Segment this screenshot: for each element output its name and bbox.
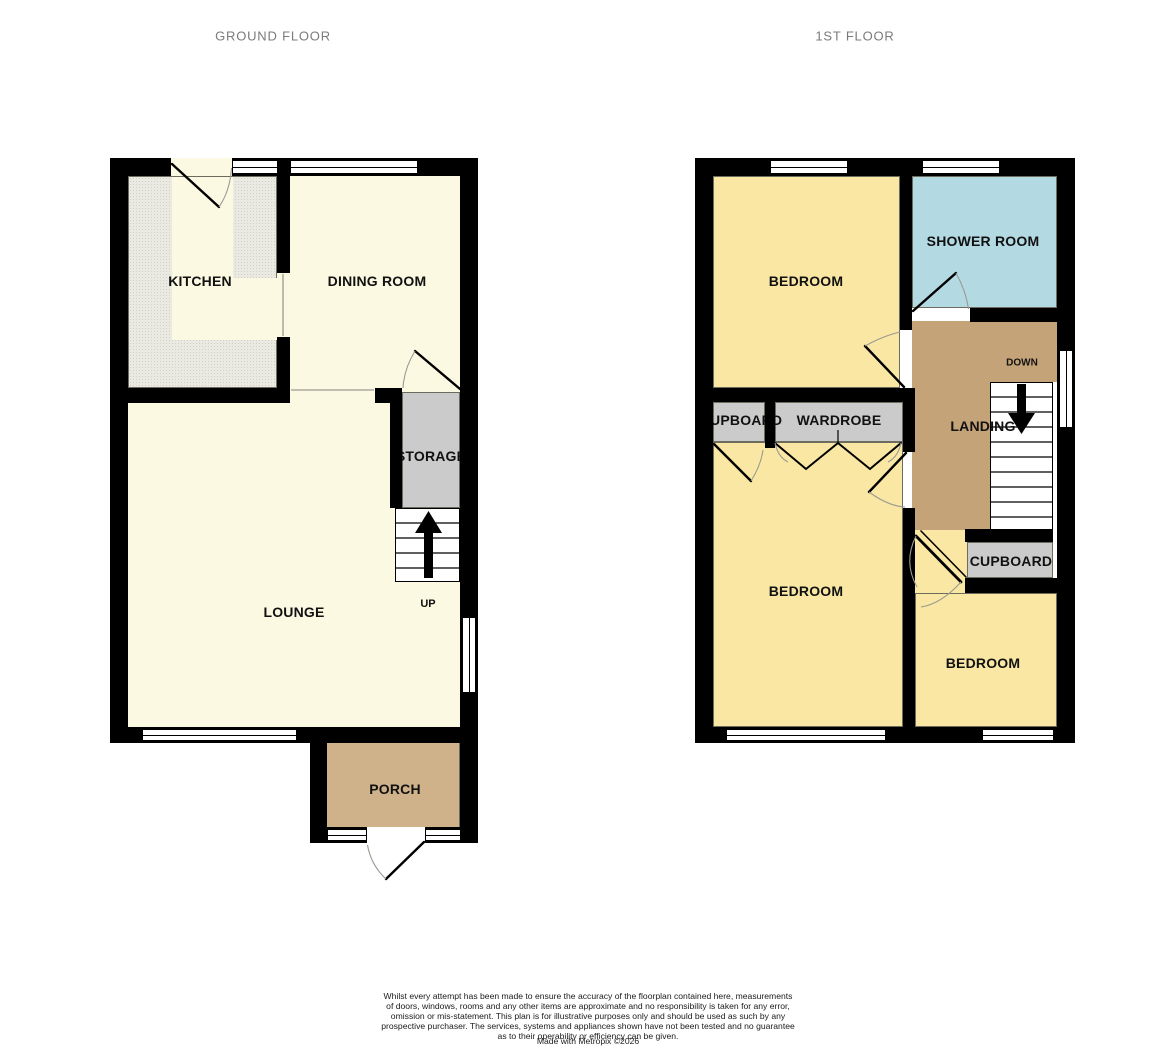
label-porch: PORCH	[369, 781, 421, 797]
window	[770, 160, 848, 174]
ground-floor-title: GROUND FLOOR	[215, 29, 331, 44]
window	[290, 160, 418, 174]
window	[142, 729, 297, 741]
label-bedroom-top: BEDROOM	[769, 273, 844, 289]
wall	[277, 158, 290, 273]
window	[232, 160, 278, 174]
room-bedroom-right-entry	[915, 530, 967, 593]
disclaimer-text: Whilst every attempt has been made to en…	[278, 992, 898, 1041]
first-floor-title: 1ST FLOOR	[815, 29, 894, 44]
label-bedroom-left: BEDROOM	[769, 583, 844, 599]
gf-porch-door	[368, 842, 425, 879]
wall	[765, 402, 775, 448]
floorplan-canvas: GROUND FLOOR 1ST FLOOR	[0, 0, 1176, 1050]
window	[327, 829, 367, 841]
window	[425, 829, 461, 841]
label-lounge: LOUNGE	[263, 604, 324, 620]
label-cupboard-right: CUPBOARD	[970, 553, 1053, 569]
wall	[110, 388, 290, 403]
room-landing	[912, 382, 990, 533]
wall	[1057, 158, 1075, 743]
label-bedroom-right: BEDROOM	[946, 655, 1021, 671]
wall	[695, 158, 713, 743]
metropix-credit: Made with Metropix ©2026	[278, 1037, 898, 1047]
wall	[965, 529, 1053, 542]
door-opening	[171, 158, 232, 176]
door-opening	[367, 827, 425, 843]
label-stairs-down: DOWN	[1006, 358, 1038, 369]
wall	[900, 158, 912, 330]
wall	[460, 158, 478, 843]
wall	[695, 158, 1075, 176]
wall	[110, 158, 128, 743]
window	[982, 729, 1054, 741]
wall	[695, 388, 915, 402]
window	[922, 160, 1000, 174]
label-shower-room: SHOWER ROOM	[927, 233, 1040, 249]
label-storage: STORAGE	[396, 448, 466, 464]
label-dining-room: DINING ROOM	[328, 273, 427, 289]
wall	[390, 392, 402, 508]
wall	[965, 578, 1057, 593]
stairs-up	[395, 508, 460, 582]
window	[462, 617, 476, 693]
window	[726, 729, 886, 741]
wall	[903, 508, 915, 728]
room-landing	[912, 321, 1057, 382]
wall	[903, 388, 915, 452]
window	[1059, 350, 1073, 428]
stairs-down	[990, 382, 1053, 530]
label-wardrobe: WARDROBE	[797, 412, 882, 428]
label-stairs-up: UP	[420, 598, 435, 610]
wall	[970, 308, 1057, 322]
label-kitchen: KITCHEN	[168, 273, 232, 289]
label-landing: LANDING	[950, 418, 1015, 434]
